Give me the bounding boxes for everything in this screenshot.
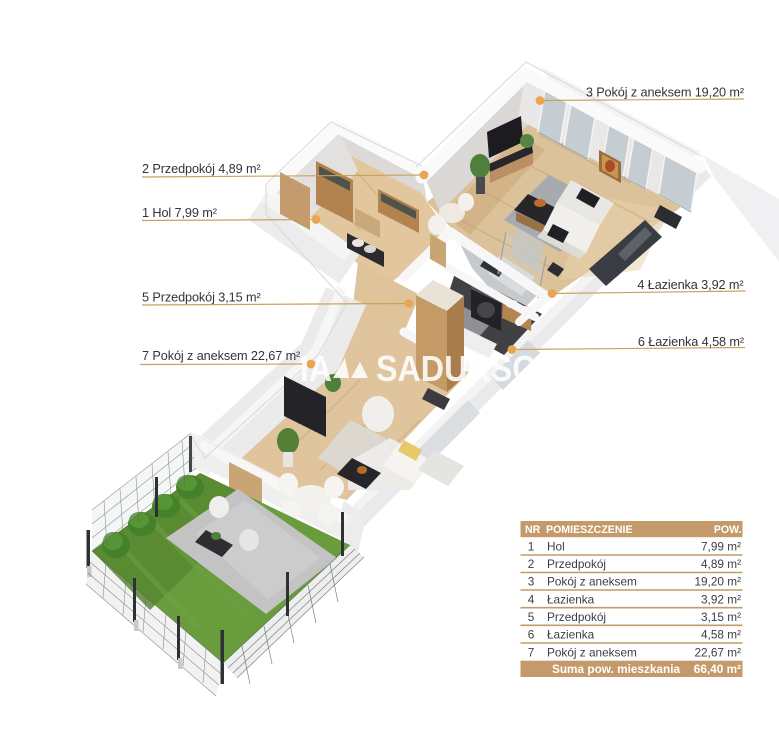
- svg-text:7 Pokój z aneksem 22,67 m²: 7 Pokój z aneksem 22,67 m²: [142, 349, 300, 363]
- svg-text:3,92 m²: 3,92 m²: [701, 592, 741, 606]
- svg-text:4 Łazienka 3,92 m²: 4 Łazienka 3,92 m²: [637, 278, 743, 292]
- svg-text:4,89 m²: 4,89 m²: [701, 557, 741, 571]
- svg-text:Pokój z aneksem: Pokój z aneksem: [547, 575, 637, 589]
- svg-text:5 Przedpokój 3,15 m²: 5 Przedpokój 3,15 m²: [142, 291, 261, 305]
- svg-text:6 Łazienka 4,58 m²: 6 Łazienka 4,58 m²: [638, 335, 744, 349]
- svg-text:Łazienka: Łazienka: [547, 628, 595, 642]
- svg-text:3: 3: [528, 575, 535, 589]
- svg-text:2: 2: [528, 557, 535, 571]
- svg-text:IA: IA: [300, 348, 332, 389]
- svg-text:Łazienka: Łazienka: [547, 592, 595, 606]
- svg-text:NR: NR: [525, 524, 541, 536]
- svg-text:66,40 m²: 66,40 m²: [694, 662, 741, 676]
- svg-text:4: 4: [528, 592, 535, 606]
- svg-text:1: 1: [528, 540, 535, 554]
- svg-text:POMIESZCZENIE: POMIESZCZENIE: [546, 524, 633, 536]
- svg-text:1 Hol 7,99 m²: 1 Hol 7,99 m²: [142, 206, 217, 220]
- svg-text:3 Pokój z aneksem 19,20 m²: 3 Pokój z aneksem 19,20 m²: [586, 86, 744, 100]
- svg-text:6: 6: [528, 628, 535, 642]
- svg-text:4,58 m²: 4,58 m²: [701, 628, 741, 642]
- svg-text:SADURSCY: SADURSCY: [376, 348, 557, 389]
- svg-text:7,99 m²: 7,99 m²: [701, 540, 741, 554]
- svg-text:Przedpokój: Przedpokój: [547, 557, 606, 571]
- svg-text:2 Przedpokój 4,89 m²: 2 Przedpokój 4,89 m²: [142, 162, 261, 176]
- svg-text:POW.: POW.: [714, 524, 742, 536]
- svg-text:3,15 m²: 3,15 m²: [701, 610, 741, 624]
- svg-text:Przedpokój: Przedpokój: [547, 610, 606, 624]
- svg-text:22,67 m²: 22,67 m²: [694, 645, 741, 659]
- svg-text:19,20 m²: 19,20 m²: [694, 575, 741, 589]
- svg-text:Suma pow. mieszkania: Suma pow. mieszkania: [552, 662, 680, 676]
- svg-text:5: 5: [528, 610, 535, 624]
- svg-text:Hol: Hol: [547, 540, 565, 554]
- svg-text:Pokój z aneksem: Pokój z aneksem: [547, 645, 637, 659]
- svg-text:7: 7: [528, 645, 535, 659]
